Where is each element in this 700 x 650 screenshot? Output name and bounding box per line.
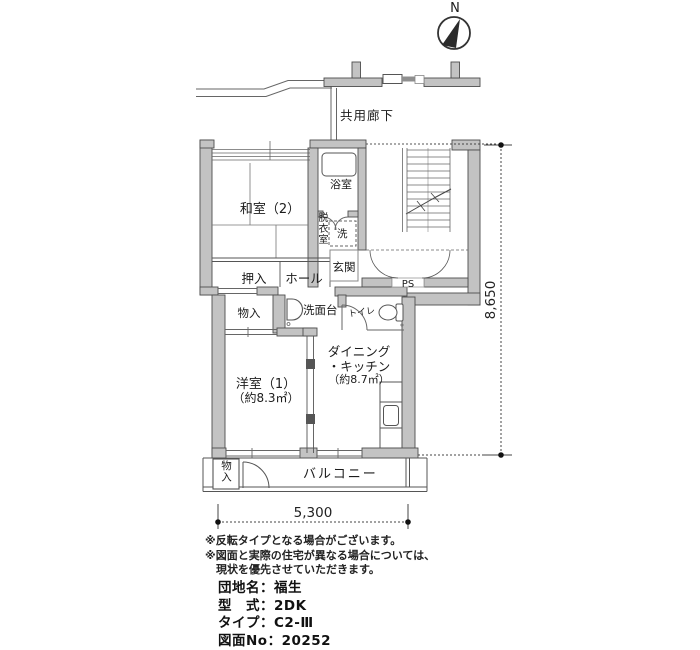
dimension-horizontal-value: 5,300	[285, 505, 341, 521]
yoshitsu-slider	[225, 327, 277, 337]
kitchen-counter	[380, 382, 402, 448]
dk-area-label: （約8.7㎡）	[313, 371, 405, 387]
floorplan-page: N 共用廊下 和室（2） 浴室 脱衣室 洗 玄関 押入 ホール PS 物入 洗面…	[0, 0, 700, 650]
info-drawing-no: 図面No：20252	[218, 633, 331, 650]
staircase	[366, 148, 468, 278]
corridor-label: 共用廊下	[340, 105, 394, 124]
notes-block: ※反転タイプとなる場合がございます。 ※図面と実際の住宅が異なる場合については、…	[205, 534, 435, 578]
note-line: ※図面と実際の住宅が異なる場合については、	[205, 549, 435, 564]
bathtub-icon	[322, 153, 356, 176]
corridor-outline	[196, 81, 337, 141]
info-plan-type: タイプ：C2-Ⅲ	[218, 615, 331, 633]
ps-label: PS	[394, 279, 422, 290]
sink-icon	[287, 299, 303, 326]
storage1-label: 物入	[229, 305, 269, 321]
toilet-icon	[379, 304, 403, 326]
vanity-label: 洗面台	[303, 302, 338, 318]
dressing-room-label: 脱衣室	[314, 212, 329, 245]
hall-label: ホール	[280, 268, 328, 287]
storage-slider	[218, 289, 257, 294]
info-danchi-name: 団地名：福生	[218, 580, 331, 598]
oshiire-label: 押入	[232, 268, 276, 287]
storage2-label: 物入	[219, 460, 234, 483]
compass-icon	[438, 17, 470, 49]
info-block: 団地名：福生 型 式：2DK タイプ：C2-Ⅲ 図面No：20252	[218, 580, 331, 650]
front-door	[383, 75, 424, 84]
entrance-label: 玄関	[330, 259, 358, 275]
note-line: ※反転タイプとなる場合がございます。	[205, 534, 435, 549]
info-unit-type: 型 式：2DK	[218, 598, 331, 616]
balcony-door	[243, 462, 269, 488]
yoshitsu1-area-label: （約8.3㎡）	[225, 389, 307, 406]
south-windows	[226, 448, 362, 458]
dimension-vertical-value: 8,650	[483, 281, 499, 320]
washitsu2-label: 和室（2）	[225, 198, 315, 217]
bath-label: 浴室	[323, 176, 359, 192]
washitsu-window	[212, 141, 310, 160]
note-line: 現状を優先させていただきます。	[216, 563, 435, 578]
compass-north-label: N	[447, 1, 463, 16]
washer-label: 洗	[337, 226, 348, 241]
balcony-label: バルコニー	[303, 463, 378, 482]
